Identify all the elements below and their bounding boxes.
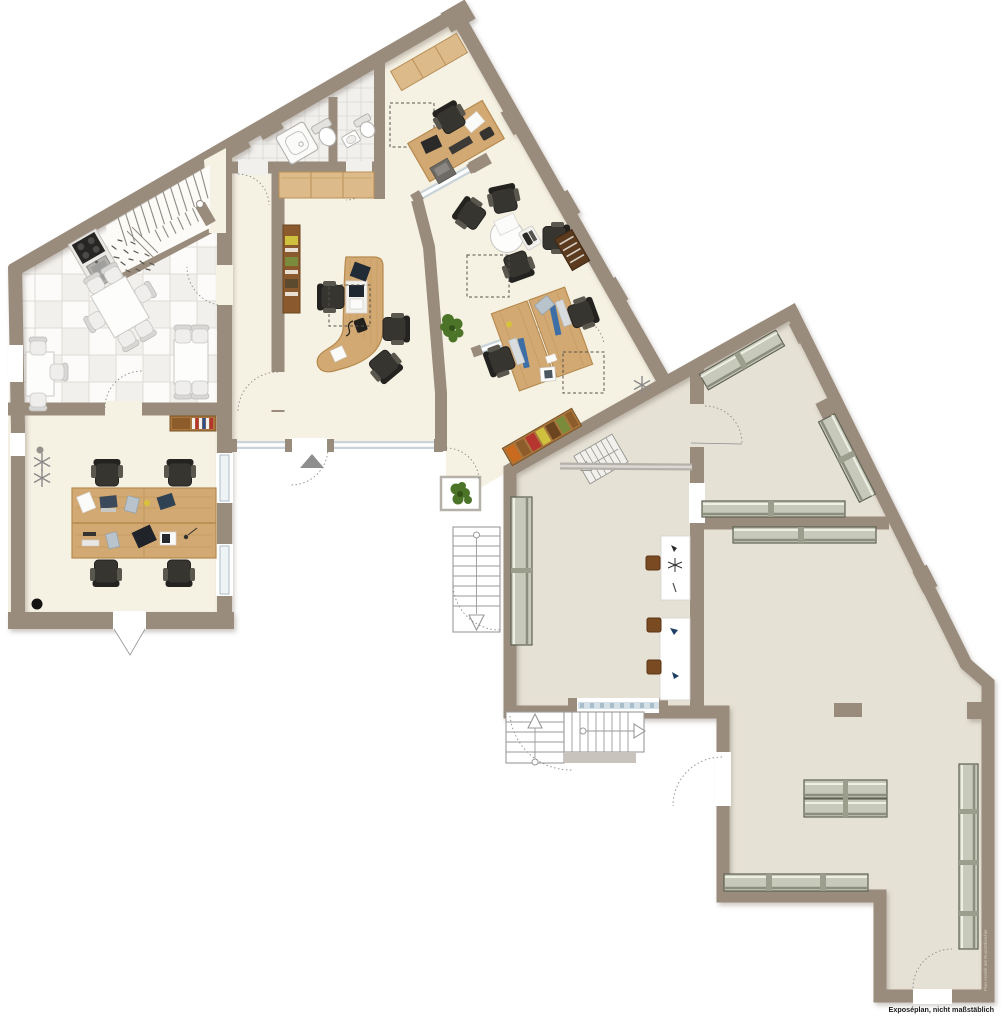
svg-text:Plan erstellt mit RoomSketcher: Plan erstellt mit RoomSketcher [983,929,988,991]
svg-text:Exposéplan, nicht maßstäblich: Exposéplan, nicht maßstäblich [889,1005,994,1014]
